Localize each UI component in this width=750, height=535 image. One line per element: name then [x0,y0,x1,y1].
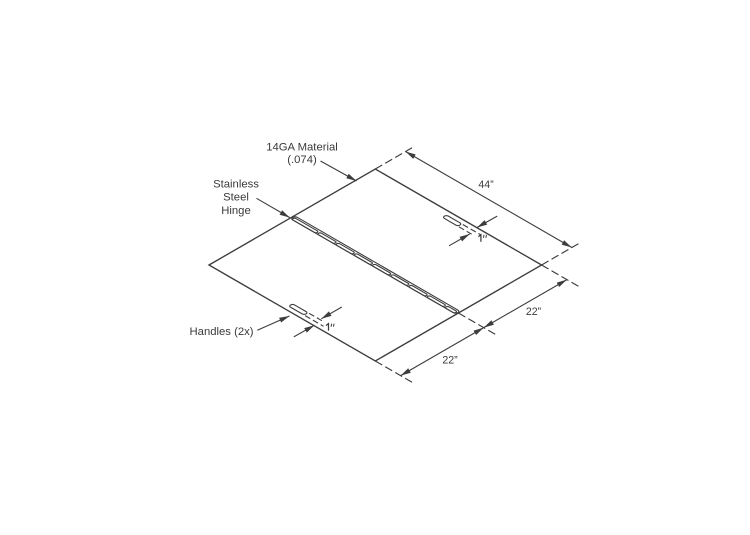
svg-text:22”: 22” [526,306,542,318]
svg-text:Hinge: Hinge [221,205,251,217]
svg-text:Steel: Steel [223,191,249,203]
svg-text:(.074): (.074) [287,154,317,166]
svg-text:44”: 44” [478,179,494,191]
svg-text:Handles (2x): Handles (2x) [190,326,254,338]
svg-text:22”: 22” [442,355,458,367]
svg-text:Stainless: Stainless [213,179,259,191]
svg-text:14GA Material: 14GA Material [266,141,338,153]
